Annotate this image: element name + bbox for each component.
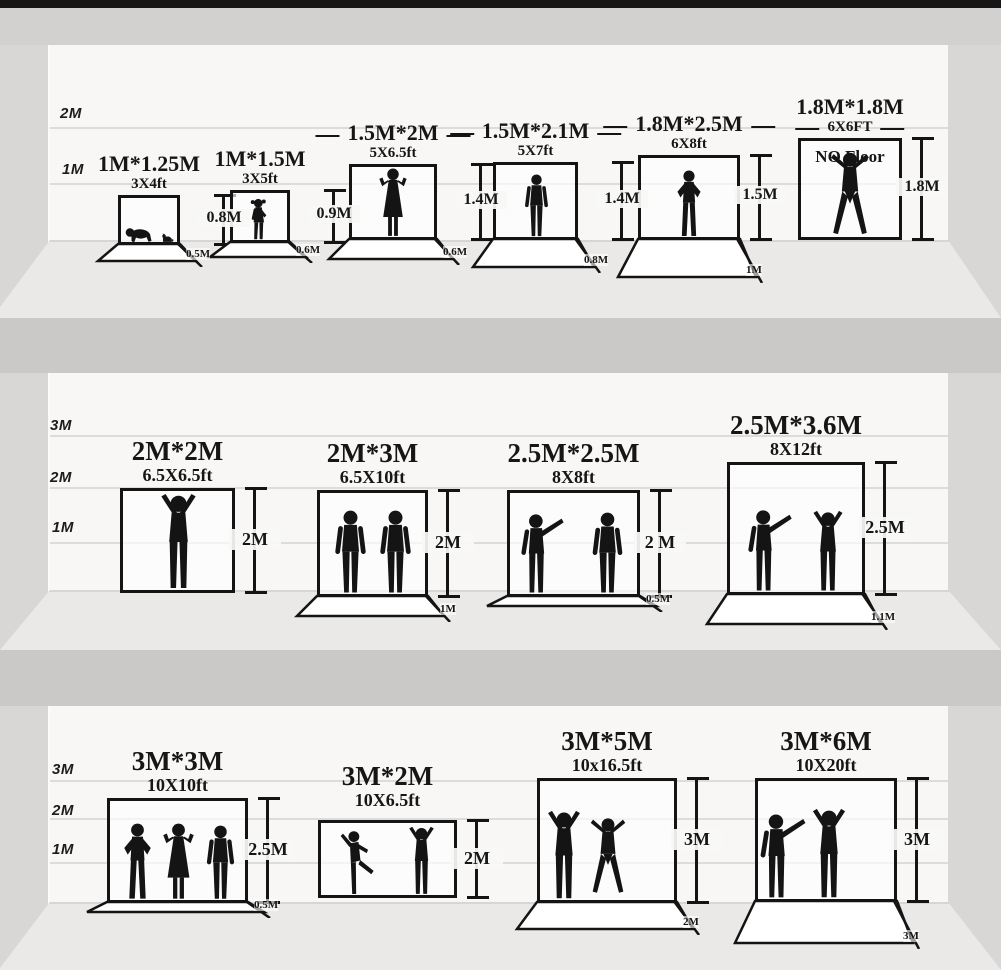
backdrop-size-chart: 2M 1M 1M*1.25M 3X4ft 0.8M 0.5M 1M* [0,0,1001,970]
floor-depth-label: 0.8M [584,254,608,266]
floor-depth-label: 0.5M [254,899,278,911]
band-medium-backdrops: 3M 2M 1M 2M*2M 6.5X6.5ft 2M 2M*3M 6.5X10… [0,373,1001,650]
backdrop-title-group: 2M*3M 6.5X10ft [327,440,418,487]
backdrop-title-group: 3M*3M 10X10ft [132,748,223,795]
figures [121,195,177,243]
man-arms-spread-icon [831,153,869,234]
cat-icon [162,234,173,242]
floor-depth-label: 0.5M [186,248,210,260]
man-hands-on-hips-icon [677,171,700,236]
height-dimension-label: 2.5M [859,517,911,538]
floor-mat [479,594,668,612]
backdrop-size-ft: 8X8ft [552,468,595,486]
backdrop-size-ft: 6X6FT [828,120,873,135]
backdrop-size-m: 1.5M*2.1M [482,120,590,142]
height-dimension-label: 1.5M [734,186,786,204]
man-standing-icon [335,511,366,593]
backdrop-title-group: 2M*2M 6.5X6.5ft [132,438,223,485]
woman-arms-raised-icon [379,169,406,236]
backdrop-item: 3M*6M 10X20ft 3M 3M [755,778,897,902]
backdrop-size-ft: 5X7ft [518,144,554,159]
floor-mat [289,594,456,622]
figures [758,780,894,900]
height-dimension-label: 1.4M [596,190,648,208]
height-dimension-label: 0.8M [198,209,250,227]
backdrop-item: 2.5M*3.6M 8X12ft 2.5M 1.1M [727,462,865,595]
height-dimension-label: 1.4M [455,191,507,209]
backdrop-title-group: 1.8M*2.5M 6X8ft [635,113,743,152]
backdrop-item: 1.8M*1.8M 6X6FT NO Floor 1.8M [798,138,902,240]
axis-label-1m: 1M [62,161,84,178]
band-small-backdrops: 2M 1M 1M*1.25M 3X4ft 0.8M 0.5M 1M* [0,45,1001,318]
backdrop-size-ft: 8X12ft [770,440,822,458]
figures [496,163,575,238]
floor-mat [509,900,705,935]
man-with-camera-icon [813,511,842,591]
figures [801,150,899,238]
floor-depth-label: 1M [440,603,456,615]
figures [352,165,434,238]
backdrop-size-m: 1.5M*2M [347,122,438,144]
dancer-kicking-icon [340,831,373,894]
backdrop-title-group: 3M*6M 10X20ft [780,728,871,775]
backdrop-title-group: 2.5M*3.6M 8X12ft [730,412,862,459]
height-dimension-label: 2 M [634,532,686,553]
man-standing-icon [524,175,547,237]
figures [641,156,737,238]
figures [730,464,862,593]
figures [321,822,454,896]
axis-label-2m: 2M [50,469,72,486]
dancer-arms-up-icon [409,827,434,894]
axis-label-2m: 2M [52,802,74,819]
backdrop-size-m: 1M*1.5M [214,148,305,170]
floor-depth-label: 0.6M [443,246,467,258]
backdrop-size-m: 1M*1.25M [98,153,200,175]
backdrop-size-m: 2.5M*2.5M [508,440,640,468]
floor-mat [79,900,276,918]
floor-depth-label: 2M [683,916,699,928]
backdrop-size-ft: 10X6.5ft [355,791,421,809]
floor-depth-label: 1M [746,264,762,276]
height-dimension-label: 2M [451,848,503,869]
height-dimension-label: 3M [671,829,723,850]
person-talking-icon [521,514,564,592]
backdrop-item: 2M*2M 6.5X6.5ft 2M [120,488,235,593]
floor-depth-label: 3M [903,930,919,942]
person-standing-icon [163,824,193,899]
height-dimension-label: 3M [891,829,943,850]
backdrop-size-ft: 10x16.5ft [572,756,643,774]
height-dimension-label: 2M [422,532,474,553]
man-cheering-icon [161,494,195,588]
backdrop-item: 1.5M*2M 5X6.5ft 1.4M 0.6M [349,164,437,240]
toddler-girl-icon [251,199,267,239]
man-pointing-icon [748,510,792,590]
figures [320,492,425,595]
backdrop-item: 3M*3M 10X10ft 2.5M 0.5M [107,798,248,903]
backdrop-item: 3M*2M 10X6.5ft 2M [318,820,457,898]
shelf-separator [0,318,1001,373]
singer-icon [813,809,845,897]
floor-mat [727,899,925,949]
backdrop-title-group: 1.8M*1.8M 6X6FT [796,96,904,135]
top-black-bar [0,0,1001,8]
backdrop-size-ft: 3X4ft [131,177,167,192]
backdrop-size-m: 2M*2M [132,438,223,466]
backdrop-size-m: 3M*3M [132,748,223,776]
backdrop-size-m: 1.8M*2.5M [635,113,743,135]
backdrop-size-ft: 3X5ft [242,172,278,187]
backdrop-title-group: 3M*5M 10x16.5ft [561,728,652,775]
backdrop-size-ft: 6.5X6.5ft [143,466,213,484]
axis-label-3m: 3M [52,761,74,778]
floor-mat [610,237,768,283]
backdrop-size-m: 3M*5M [561,728,652,756]
backdrop-title-group: 2.5M*2.5M 8X8ft [508,440,640,487]
person-standing-icon [124,824,151,899]
man-standing-icon [380,511,411,593]
person-standing-icon [206,826,234,899]
floor-depth-label: 0.5M [646,593,670,605]
backdrop-size-ft: 10X10ft [147,776,208,794]
backdrop-title-group: 1.5M*2M 5X6.5ft [347,122,438,161]
backdrop-title-group: 3M*2M 10X6.5ft [342,763,433,810]
shelf-separator [0,650,1001,706]
figures [540,780,674,901]
backdrop-item: 1.8M*2.5M 6X8ft 1.5M 1M [638,155,740,240]
figures [123,490,232,591]
height-dimension-label: 0.9M [308,205,360,223]
backdrop-size-ft: 5X6.5ft [369,146,416,161]
backdrop-item: 2.5M*2.5M 8X8ft 2 M 0.5M [507,490,640,597]
backdrop-item: 1M*1.25M 3X4ft 0.8M 0.5M [118,195,180,245]
backdrop-title-group: 1.5M*2.1M 5X7ft [482,120,590,159]
axis-label-2m: 2M [60,105,82,122]
backdrop-title-group: 1M*1.5M 3X5ft [214,148,305,187]
person-listening-icon [592,513,622,593]
axis-label-3m: 3M [50,417,72,434]
backdrop-size-m: 2M*3M [327,440,418,468]
ceiling-strip [0,8,1001,45]
floor-depth-label: 1.1M [871,611,895,623]
guitarist-icon [760,814,805,897]
axis-label-1m: 1M [52,519,74,536]
dancer-arms-up-icon [591,818,626,892]
backdrop-size-ft: 10X20ft [796,756,857,774]
band-large-backdrops: 3M 2M 1M 3M*3M 10X10ft 2.5M 0.5M [0,706,1001,970]
backdrop-item: 2M*3M 6.5X10ft 2M 1M [317,490,428,597]
backdrop-size-m: 1.8M*1.8M [796,96,904,118]
axis-label-1m: 1M [52,841,74,858]
height-dimension-label: 2.5M [242,839,294,860]
dancer-arms-up-icon [548,811,580,898]
crawling-baby-icon [126,228,152,242]
backdrop-size-m: 3M*6M [780,728,871,756]
floor-mat [699,592,893,630]
backdrop-size-m: 2.5M*3.6M [730,412,862,440]
backdrop-size-ft: 6X8ft [671,137,707,152]
figures [510,492,637,595]
backdrop-size-ft: 6.5X10ft [340,468,406,486]
backdrop-item: 3M*5M 10x16.5ft 3M 2M [537,778,677,903]
floor-depth-label: 0.6M [296,244,320,256]
figures [110,800,245,901]
height-dimension-label: 2M [229,529,281,550]
backdrop-title-group: 1M*1.25M 3X4ft [98,153,200,192]
backdrop-size-m: 3M*2M [342,763,433,791]
height-dimension-label: 1.8M [896,178,948,196]
